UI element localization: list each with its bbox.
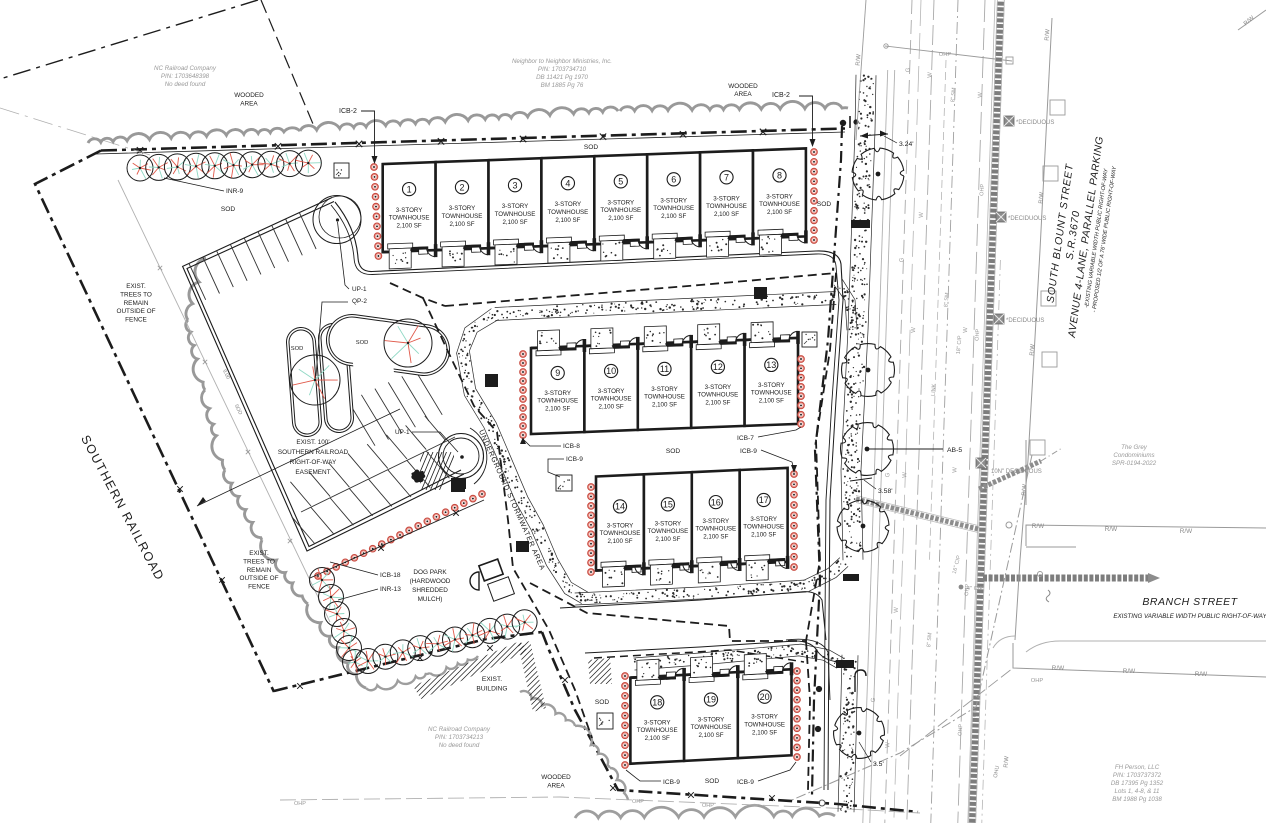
svg-text:3-STORY: 3-STORY <box>396 207 423 214</box>
svg-text:3: 3 <box>512 180 517 190</box>
svg-text:RIGHT-OF-WAY: RIGHT-OF-WAY <box>290 459 337 466</box>
svg-text:*DECIDUOUS: *DECIDUOUS <box>1006 318 1044 324</box>
svg-text:3-STORY: 3-STORY <box>449 205 476 212</box>
svg-text:3-STORY: 3-STORY <box>713 195 740 202</box>
svg-text:3-STORY: 3-STORY <box>544 390 571 397</box>
svg-text:R/W: R/W <box>1180 528 1193 535</box>
svg-text:SOD: SOD <box>705 778 720 785</box>
svg-text:PIN: 1703734213: PIN: 1703734213 <box>435 734 484 741</box>
svg-text:2,100 SF: 2,100 SF <box>555 217 580 224</box>
svg-text:3-STORY: 3-STORY <box>698 717 725 724</box>
svg-text:OHP: OHP <box>974 328 981 341</box>
svg-text:ICB-2: ICB-2 <box>772 92 790 99</box>
svg-text:3-STORY: 3-STORY <box>703 518 730 525</box>
svg-text:Condominiums: Condominiums <box>1113 452 1154 459</box>
svg-text:NC Railroad Company: NC Railroad Company <box>428 726 491 733</box>
svg-text:SHREDDED: SHREDDED <box>412 587 448 594</box>
svg-text:TOWNHOUSE: TOWNHOUSE <box>648 528 689 535</box>
svg-text:2,100 SF: 2,100 SF <box>698 732 723 739</box>
svg-text:R/W: R/W <box>1195 671 1208 678</box>
svg-text:ICB-8: ICB-8 <box>563 443 580 450</box>
svg-text:EASEMENT: EASEMENT <box>295 469 330 476</box>
svg-text:16: 16 <box>711 497 721 507</box>
svg-text:W: W <box>894 607 900 613</box>
svg-text:INR-9: INR-9 <box>226 188 244 195</box>
svg-text:R/W: R/W <box>1039 192 1046 204</box>
svg-text:G: G <box>899 257 905 262</box>
svg-text:ICB-2: ICB-2 <box>339 108 357 115</box>
svg-text:FENCE: FENCE <box>248 584 270 591</box>
svg-text:FENCE: FENCE <box>125 317 147 324</box>
svg-text:4: 4 <box>565 178 570 188</box>
svg-text:14: 14 <box>615 502 625 512</box>
svg-text:QP-2: QP-2 <box>352 298 367 305</box>
svg-text:TOWNHOUSE: TOWNHOUSE <box>759 201 800 208</box>
svg-text:R/W: R/W <box>1030 344 1037 356</box>
svg-text:DOG PARK: DOG PARK <box>413 569 447 576</box>
svg-text:R/W: R/W <box>1032 523 1045 530</box>
svg-text:3-STORY: 3-STORY <box>607 522 634 529</box>
svg-text:TREES TO: TREES TO <box>243 558 275 565</box>
svg-text:REMAIN: REMAIN <box>247 567 272 574</box>
svg-text:WOODED: WOODED <box>234 92 264 99</box>
svg-text:AB-5: AB-5 <box>947 447 962 454</box>
svg-text:G: G <box>885 472 891 477</box>
svg-text:ICB-9: ICB-9 <box>566 456 583 463</box>
svg-text:W: W <box>902 472 908 478</box>
svg-text:2,100 SF: 2,100 SF <box>397 223 422 230</box>
svg-text:WOODED: WOODED <box>541 774 571 781</box>
svg-text:EXISTING VARIABLE WIDTH PUBLIC: EXISTING VARIABLE WIDTH PUBLIC RIGHT-OF-… <box>1113 613 1266 620</box>
svg-text:2,100 SF: 2,100 SF <box>751 532 776 539</box>
svg-text:18: 18 <box>652 698 662 708</box>
svg-text:R/W: R/W <box>1045 29 1052 41</box>
svg-text:TOWNHOUSE: TOWNHOUSE <box>743 524 784 531</box>
svg-text:2,100 SF: 2,100 SF <box>661 213 686 220</box>
svg-text:TOWNHOUSE: TOWNHOUSE <box>600 207 641 214</box>
svg-text:FH Person, LLC: FH Person, LLC <box>1115 764 1160 771</box>
svg-text:OUTSIDE OF: OUTSIDE OF <box>239 575 278 582</box>
svg-text:TOWNHOUSE: TOWNHOUSE <box>751 390 792 397</box>
svg-text:3-STORY: 3-STORY <box>598 388 625 395</box>
svg-text:ICB-7: ICB-7 <box>737 435 754 442</box>
svg-text:BUILDING: BUILDING <box>476 686 507 693</box>
svg-text:*DECIDUOUS: *DECIDUOUS <box>1008 216 1046 222</box>
svg-text:UP-1: UP-1 <box>352 286 367 293</box>
svg-text:12: 12 <box>713 362 723 372</box>
svg-text:EXIST.: EXIST. <box>482 676 502 683</box>
svg-text:UP-1: UP-1 <box>395 429 410 436</box>
svg-text:*DECIDUOUS: *DECIDUOUS <box>1016 120 1054 126</box>
svg-text:Lots 1, 4-8, & 11: Lots 1, 4-8, & 11 <box>1115 788 1160 795</box>
svg-text:2,100 SF: 2,100 SF <box>502 219 527 226</box>
svg-text:R/W: R/W <box>1004 756 1011 768</box>
svg-text:TOWNHOUSE: TOWNHOUSE <box>389 215 430 222</box>
svg-text:W: W <box>919 212 925 218</box>
svg-text:OHP: OHP <box>1031 678 1044 684</box>
svg-text:REMAIN: REMAIN <box>124 300 149 307</box>
svg-text:2,100 SF: 2,100 SF <box>545 406 570 413</box>
svg-text:TOWNHOUSE: TOWNHOUSE <box>706 203 747 210</box>
svg-text:2,100 SF: 2,100 SF <box>645 735 670 742</box>
svg-text:3-STORY: 3-STORY <box>766 193 793 200</box>
svg-text:3-STORY: 3-STORY <box>502 203 529 210</box>
svg-text:PIN: 1703734710: PIN: 1703734710 <box>538 66 587 73</box>
svg-text:R/W: R/W <box>1123 668 1136 675</box>
svg-text:W: W <box>911 327 917 333</box>
svg-text:EXIST.: EXIST. <box>126 283 146 290</box>
svg-text:TOWNHOUSE: TOWNHOUSE <box>691 724 732 731</box>
svg-text:2: 2 <box>459 182 464 192</box>
svg-text:SOD: SOD <box>221 206 236 213</box>
svg-text:EXIST.: EXIST. <box>249 550 269 557</box>
svg-text:R/W: R/W <box>1052 665 1065 672</box>
svg-text:2,100 SF: 2,100 SF <box>655 536 680 543</box>
svg-text:3-STORY: 3-STORY <box>750 516 777 523</box>
svg-text:AREA: AREA <box>734 91 752 98</box>
svg-text:W: W <box>978 92 984 98</box>
svg-text:17: 17 <box>759 495 769 505</box>
svg-text:TOWNHOUSE: TOWNHOUSE <box>600 530 641 537</box>
svg-text:7: 7 <box>724 173 729 183</box>
svg-text:9: 9 <box>555 368 560 378</box>
svg-text:2,100 SF: 2,100 SF <box>705 400 730 407</box>
svg-text:MULCH): MULCH) <box>418 596 443 603</box>
svg-text:OHP: OHP <box>294 801 306 807</box>
svg-text:W: W <box>952 467 958 473</box>
svg-text:INR-13: INR-13 <box>380 586 401 593</box>
svg-text:6: 6 <box>671 175 676 185</box>
svg-text:2,100 SF: 2,100 SF <box>449 221 474 228</box>
svg-text:5: 5 <box>618 177 623 187</box>
svg-text:2,100 SF: 2,100 SF <box>652 402 677 409</box>
svg-text:W: W <box>963 327 969 333</box>
svg-text:19: 19 <box>706 695 716 705</box>
svg-text:SOD: SOD <box>595 699 610 706</box>
svg-text:BRANCH STREET: BRANCH STREET <box>1142 596 1238 608</box>
svg-text:1: 1 <box>407 184 412 194</box>
svg-text:2,100 SF: 2,100 SF <box>703 534 728 541</box>
svg-text:LINK: LINK <box>931 383 938 396</box>
svg-text:TOWNHOUSE: TOWNHOUSE <box>653 205 694 212</box>
svg-text:2,100 SF: 2,100 SF <box>759 398 784 405</box>
svg-text:3-STORY: 3-STORY <box>555 201 582 208</box>
svg-text:The Grey: The Grey <box>1121 444 1148 451</box>
svg-text:13: 13 <box>766 360 776 370</box>
svg-text:3-STORY: 3-STORY <box>751 714 778 721</box>
svg-text:10: 10 <box>606 366 616 376</box>
svg-text:DB 17395 Pg 1352: DB 17395 Pg 1352 <box>1111 780 1164 787</box>
svg-text:SOD: SOD <box>291 346 304 352</box>
svg-text:3-STORY: 3-STORY <box>644 719 671 726</box>
svg-text:BM 1885 Pg 76: BM 1885 Pg 76 <box>541 82 584 89</box>
svg-text:ICB-9: ICB-9 <box>740 448 757 455</box>
svg-text:3-STORY: 3-STORY <box>758 382 785 389</box>
svg-text:3-STORY: 3-STORY <box>660 197 687 204</box>
svg-text:TOWNHOUSE: TOWNHOUSE <box>548 209 589 216</box>
svg-text:ICB-9: ICB-9 <box>737 779 754 786</box>
svg-text:PIN: 1703648398: PIN: 1703648398 <box>161 73 210 80</box>
svg-text:3.24': 3.24' <box>899 141 914 148</box>
svg-text:OHP: OHP <box>702 803 714 809</box>
svg-text:TOWNHOUSE: TOWNHOUSE <box>495 211 536 218</box>
svg-text:2,100 SF: 2,100 SF <box>752 729 777 736</box>
svg-text:No deed found: No deed found <box>439 742 480 749</box>
svg-text:3-STORY: 3-STORY <box>608 199 635 206</box>
svg-text:15: 15 <box>663 500 673 510</box>
svg-text:TOWNHOUSE: TOWNHOUSE <box>637 727 678 734</box>
svg-text:4" CIP: 4" CIP <box>967 586 984 592</box>
svg-text:R/W: R/W <box>1105 526 1118 533</box>
svg-text:3-STORY: 3-STORY <box>651 386 678 393</box>
svg-text:OUTSIDE OF: OUTSIDE OF <box>116 308 155 315</box>
svg-text:WOODED: WOODED <box>728 83 758 90</box>
svg-text:G: G <box>871 697 877 702</box>
svg-text:SOD: SOD <box>666 448 681 455</box>
svg-text:AREA: AREA <box>240 101 258 108</box>
svg-text:No deed found: No deed found <box>165 81 206 88</box>
svg-text:2,100 SF: 2,100 SF <box>714 211 739 218</box>
svg-text:ICB-9: ICB-9 <box>663 779 680 786</box>
svg-text:TOWNHOUSE: TOWNHOUSE <box>695 526 736 533</box>
svg-text:G: G <box>906 67 912 72</box>
svg-text:2,100 SF: 2,100 SF <box>607 538 632 545</box>
svg-text:Neighbor to Neighbor Ministrie: Neighbor to Neighbor Ministries, Inc. <box>512 58 612 65</box>
svg-text:3.58': 3.58' <box>878 488 893 495</box>
svg-text:2,100 SF: 2,100 SF <box>608 215 633 222</box>
svg-text:2,100 SF: 2,100 SF <box>767 209 792 216</box>
svg-text:ICB-18: ICB-18 <box>380 572 401 579</box>
svg-text:OHP: OHP <box>957 723 964 736</box>
svg-text:SOD: SOD <box>584 144 599 151</box>
svg-text:2,100 SF: 2,100 SF <box>599 404 624 411</box>
svg-text:3.5': 3.5' <box>873 761 884 768</box>
svg-text:TREES TO: TREES TO <box>120 291 152 298</box>
svg-text:OHP: OHP <box>979 183 986 196</box>
svg-text:TOWNHOUSE: TOWNHOUSE <box>644 394 685 401</box>
svg-text:BM 1988 Pg 1038: BM 1988 Pg 1038 <box>1112 796 1162 803</box>
svg-text:3-STORY: 3-STORY <box>705 384 732 391</box>
svg-text:NC Railroad Company: NC Railroad Company <box>154 65 217 72</box>
svg-text:TOWNHOUSE: TOWNHOUSE <box>591 396 632 403</box>
svg-text:W: W <box>927 72 933 78</box>
svg-text:TOWNHOUSE: TOWNHOUSE <box>744 721 785 728</box>
svg-text:SOD: SOD <box>356 340 369 346</box>
svg-text:TOWNHOUSE: TOWNHOUSE <box>537 398 578 405</box>
svg-text:3-STORY: 3-STORY <box>655 520 682 527</box>
svg-text:R/W: R/W <box>856 54 863 66</box>
svg-text:W: W <box>885 742 891 748</box>
svg-text:AREA: AREA <box>547 783 565 790</box>
svg-text:OHP: OHP <box>632 799 644 805</box>
svg-text:11: 11 <box>660 364 669 374</box>
svg-text:(HARDWOOD: (HARDWOOD <box>410 578 451 585</box>
svg-text:SPR-0194-2022: SPR-0194-2022 <box>1112 460 1157 467</box>
svg-text:PIN: 1703737372: PIN: 1703737372 <box>1113 772 1162 779</box>
svg-text:DB 11421 Pg 1970: DB 11421 Pg 1970 <box>536 74 588 81</box>
svg-text:TOWNHOUSE: TOWNHOUSE <box>698 392 739 399</box>
svg-text:SOD: SOD <box>817 201 832 208</box>
svg-text:8: 8 <box>777 171 782 181</box>
svg-text:20: 20 <box>760 692 770 702</box>
svg-text:OHP: OHP <box>939 52 952 58</box>
svg-text:TOWNHOUSE: TOWNHOUSE <box>442 213 483 220</box>
